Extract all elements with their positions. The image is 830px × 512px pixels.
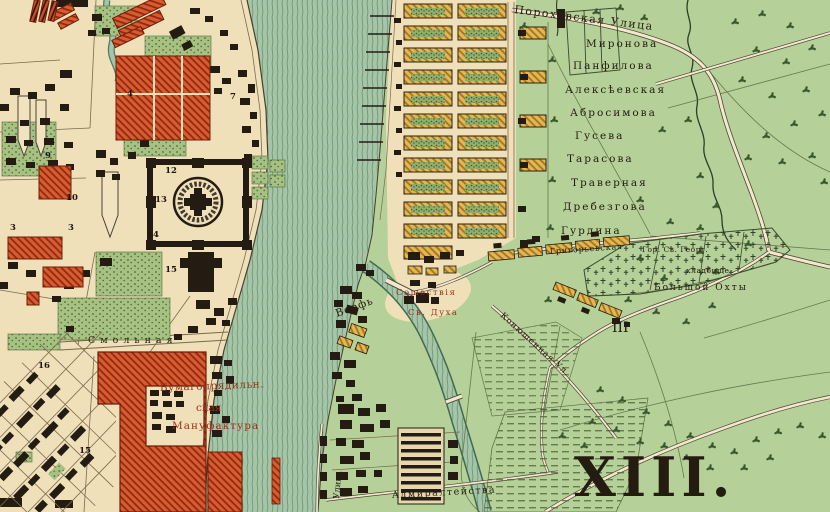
street-label-panfilova: Панфилова: [573, 60, 654, 72]
landmark-number: 16: [38, 361, 50, 371]
landmark-number: 3: [68, 223, 74, 233]
street-label-mironova: Миронова: [586, 38, 658, 50]
landmark-number: 7: [230, 92, 236, 102]
district-numeral-iii: III: [612, 320, 629, 336]
landmark-number: 13: [155, 195, 167, 205]
cemetery-label-line1: Гор. Св. Георг.: [642, 245, 708, 254]
street-label-tarasova: Тарасова: [567, 153, 634, 165]
street-label-guseva: Гусева: [575, 130, 624, 142]
street-label-abrosimova: Абросимова: [570, 107, 657, 119]
church-label-line1: Сошествія: [396, 288, 456, 298]
landmark-number: 15: [165, 265, 177, 275]
street-label-gurdina: Гурдина: [561, 225, 622, 237]
church-label-line2: Св. Духа: [408, 308, 458, 318]
manufactory-label-line2: ская: [196, 402, 222, 414]
map-canvas: Пороховская Улица Миронова Панфилова Але…: [0, 0, 830, 512]
cemetery-label-line2: кладбище: [686, 266, 730, 275]
landmark-number: 9: [45, 151, 51, 161]
map-viewport: Пороховская Улица Миронова Панфилова Але…: [0, 0, 830, 512]
landmark-number: 12: [165, 166, 177, 176]
cemetery-label-line3: Большой Охты: [654, 283, 748, 293]
district-numeral-xiii: XIII.: [574, 445, 735, 509]
landmark-number: 10: [66, 193, 78, 203]
street-label-alekseevskaya: Алексѣевская: [565, 84, 666, 96]
river-landing-stage: [272, 458, 280, 504]
landmark-number: 3: [10, 223, 16, 233]
landmark-number: 15: [79, 446, 91, 456]
landmark-number: 4: [127, 89, 133, 99]
street-label-smolnaya: Смольная: [88, 335, 178, 346]
street-label-travernaya: Траверная: [571, 177, 648, 189]
landmark-number: 14: [147, 230, 159, 240]
manufactory-label-line3: Мануфактура: [172, 420, 259, 432]
street-label-drebezgova: Дребезгова: [563, 201, 647, 213]
